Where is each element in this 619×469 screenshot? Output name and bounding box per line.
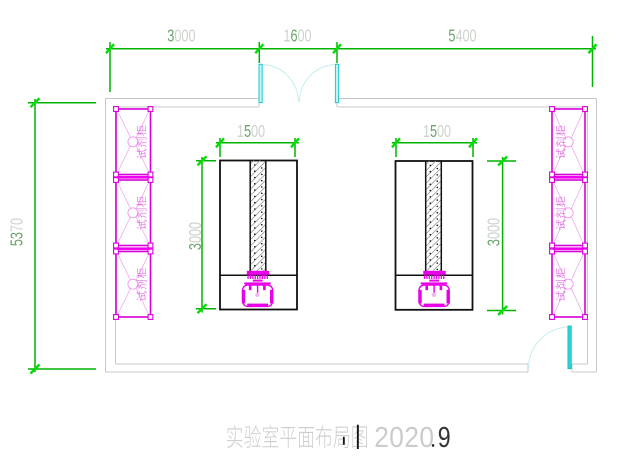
svg-text:3000: 3000 xyxy=(167,26,195,45)
svg-text:9: 9 xyxy=(438,420,451,453)
svg-text:1600: 1600 xyxy=(283,26,311,45)
svg-text:5370: 5370 xyxy=(8,218,27,246)
svg-text:1500: 1500 xyxy=(423,122,451,141)
svg-text:3000: 3000 xyxy=(186,222,205,250)
svg-text:2020: 2020 xyxy=(374,421,434,453)
svg-text:1500: 1500 xyxy=(237,122,265,141)
svg-text:5400: 5400 xyxy=(448,26,476,45)
svg-text:3000: 3000 xyxy=(485,218,504,246)
